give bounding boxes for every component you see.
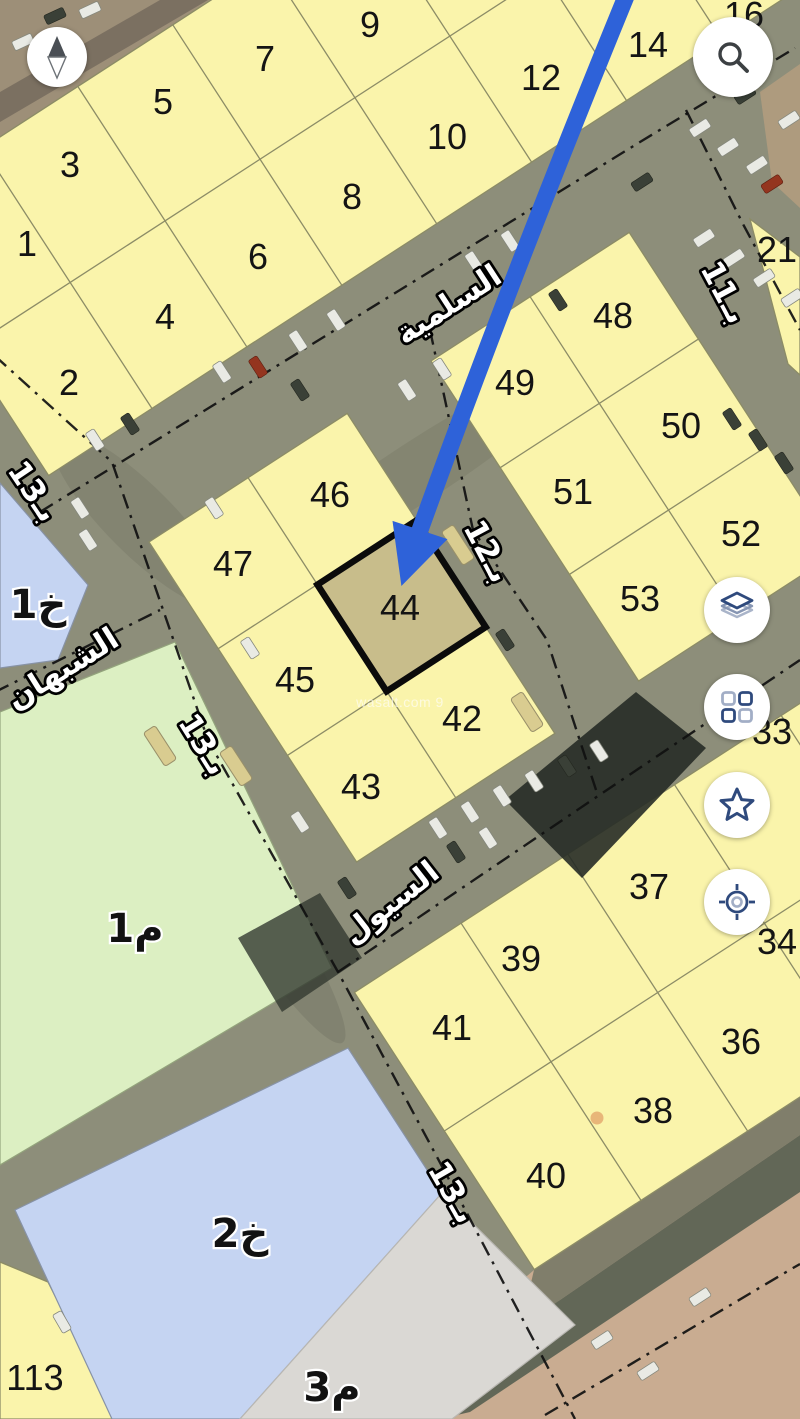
plot-label-9: 9: [360, 4, 380, 45]
search-icon: [714, 38, 752, 76]
plot-label-53: 53: [620, 578, 660, 619]
plot-label-3: 3: [60, 144, 80, 185]
plot-label-1: 1: [17, 223, 37, 264]
plot-label-50: 50: [661, 405, 701, 446]
plot-label-5: 5: [153, 81, 173, 122]
layers-icon: [717, 591, 757, 629]
plot-label-10: 10: [427, 116, 467, 157]
favorites-button[interactable]: [704, 772, 770, 838]
map-app: 1234567891012141621333436373839404142434…: [0, 0, 800, 1419]
plot-label-49: 49: [495, 362, 535, 403]
apps-grid-button[interactable]: [704, 674, 770, 740]
compass-button[interactable]: [27, 27, 87, 87]
plot-label-39: 39: [501, 938, 541, 979]
plot-label-40: 40: [526, 1155, 566, 1196]
plot-label-41: 41: [432, 1007, 472, 1048]
compass-needle-icon: [40, 34, 74, 80]
map-canvas[interactable]: 1234567891012141621333436373839404142434…: [0, 0, 800, 1419]
layers-button[interactable]: [704, 577, 770, 643]
plot-label-52: 52: [721, 513, 761, 554]
my-location-button[interactable]: [704, 869, 770, 935]
zone-label: خ2: [212, 1211, 269, 1257]
zone-label: م1: [106, 906, 163, 952]
plot-label-4: 4: [155, 296, 175, 337]
zone-label: خ1: [10, 582, 67, 628]
plot-label-21: 21: [757, 229, 797, 270]
gps-target-icon: [717, 882, 757, 922]
plot-label-38: 38: [633, 1090, 673, 1131]
plot-label-14: 14: [628, 24, 668, 65]
search-button[interactable]: [693, 17, 773, 97]
plot-label-12: 12: [521, 57, 561, 98]
plot-label-44: 44: [380, 587, 420, 628]
plot-label-7: 7: [255, 38, 275, 79]
plot-label-2: 2: [59, 362, 79, 403]
zone-label: م3: [303, 1365, 360, 1411]
plot-label-47: 47: [213, 543, 253, 584]
plot-label-45: 45: [275, 659, 315, 700]
plot-label-6: 6: [248, 236, 268, 277]
plot-label-37: 37: [629, 866, 669, 907]
plot-label-48: 48: [593, 295, 633, 336]
plot-label-42: 42: [442, 698, 482, 739]
plot-label-36: 36: [721, 1021, 761, 1062]
watermark: wasalt.com 9: [355, 694, 444, 710]
plot-label-46: 46: [310, 474, 350, 515]
grid-squares-icon: [720, 690, 754, 724]
plot-label-51: 51: [553, 471, 593, 512]
plot-label-34: 34: [757, 921, 797, 962]
map-dot: [591, 1112, 604, 1125]
plot-label-43: 43: [341, 766, 381, 807]
plot-label-113: 113: [6, 1357, 63, 1398]
star-icon: [717, 785, 757, 825]
plot-label-8: 8: [342, 176, 362, 217]
